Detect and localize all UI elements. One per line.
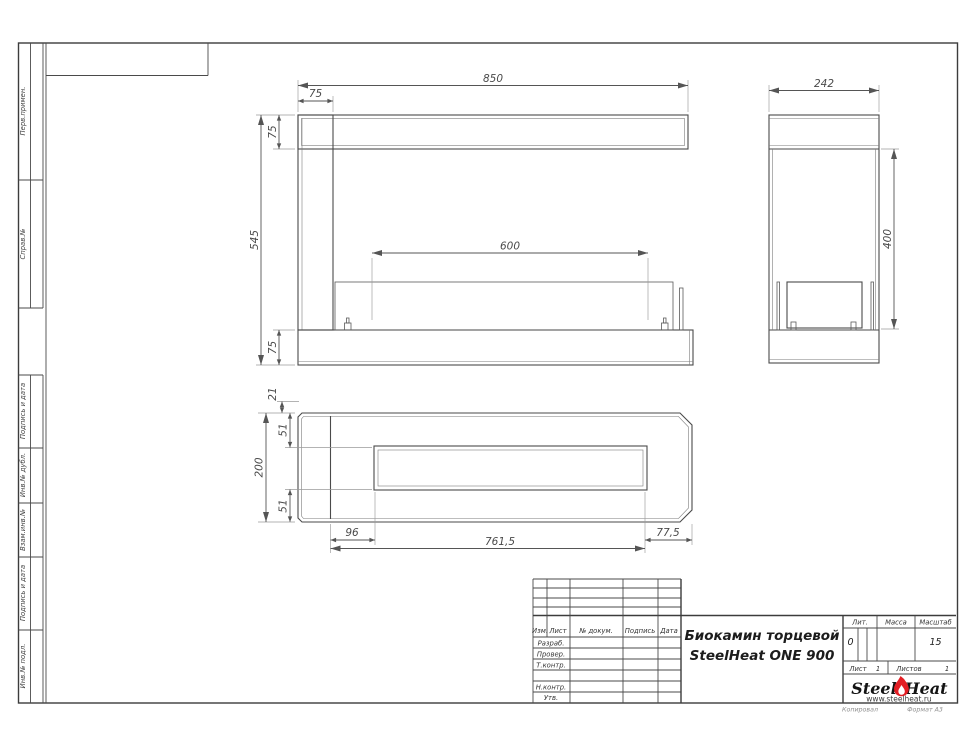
front-view-dimensions: 850 75 75 545 600 75 bbox=[249, 73, 688, 365]
glass-panel bbox=[335, 282, 673, 330]
sheets-value: 1 bbox=[945, 665, 949, 673]
glass-edge-left bbox=[777, 282, 780, 330]
dim-front-left-inset: 75 bbox=[309, 88, 323, 100]
stamp-label-vzam-inv: Взам.инв.№ bbox=[19, 509, 27, 551]
sheets-label: Листов bbox=[895, 665, 921, 673]
dim-top-overall-depth: 200 bbox=[254, 457, 266, 477]
dim-front-top-bar-height: 75 bbox=[267, 125, 279, 139]
row-checked: Провер. bbox=[537, 651, 565, 659]
lit-label: Лит. bbox=[851, 619, 868, 627]
glass-edge-right bbox=[871, 282, 874, 330]
burner-slot bbox=[374, 446, 647, 490]
dim-front-overall-height: 545 bbox=[249, 230, 261, 250]
dim-top-slot-length: 761,5 bbox=[485, 536, 515, 548]
front-view bbox=[298, 115, 693, 365]
mass-label: Масса bbox=[885, 619, 907, 627]
steelheat-logo: Steel Heat www.steelheat.ru bbox=[851, 676, 948, 704]
burner-block bbox=[787, 282, 862, 328]
row-ncontrol: Н.контр. bbox=[536, 684, 566, 692]
sheet-border bbox=[19, 43, 958, 703]
dim-front-base-height: 75 bbox=[267, 341, 279, 355]
stamp-label-podpis-data-2: Подпись и дата bbox=[19, 565, 27, 621]
col-doc: № докум. bbox=[578, 627, 613, 635]
top-view-dimensions: 21 51 51 200 96 761,5 77,5 bbox=[254, 387, 693, 553]
scale-label: Масштаб bbox=[919, 619, 951, 627]
glass-holder-rod bbox=[680, 288, 684, 330]
dim-front-overall-width: 850 bbox=[483, 73, 503, 85]
document-title-line2: SteelHeat ONE 900 bbox=[690, 648, 835, 664]
footer-notes: Копировал Формат А3 bbox=[842, 707, 943, 714]
col-list: Лист bbox=[548, 627, 567, 635]
stamp-label-inv-dubl: Инв.№ дубл. bbox=[19, 453, 27, 497]
lit-value: 0 bbox=[847, 637, 853, 648]
stamp-label-inv-podl: Инв.№ подл. bbox=[19, 644, 27, 689]
format-label: Формат А3 bbox=[907, 707, 943, 714]
drawing-page: Перв.примен. Справ.№ Подпись и дата Инв.… bbox=[0, 0, 970, 749]
col-sign: Подпись bbox=[625, 627, 656, 635]
row-developed: Разраб. bbox=[538, 640, 565, 648]
dim-side-opening-height: 400 bbox=[882, 229, 894, 249]
logo-website: www.steelheat.ru bbox=[866, 695, 932, 704]
stamp-column: Перв.примен. Справ.№ Подпись и дата Инв.… bbox=[19, 43, 44, 703]
dim-top-left-offset: 96 bbox=[345, 527, 359, 539]
sheet-label: Лист bbox=[848, 665, 867, 673]
row-tcontrol: Т.контр. bbox=[536, 662, 565, 670]
sheet-value: 1 bbox=[876, 665, 880, 673]
col-date: Дата bbox=[659, 627, 678, 635]
drawing-sheet: Перв.примен. Справ.№ Подпись и дата Инв.… bbox=[0, 0, 970, 749]
burner-clamp-right bbox=[662, 318, 669, 330]
stamp-label-podpis-data-1: Подпись и дата bbox=[19, 383, 27, 439]
document-title-line1: Биокамин торцевой bbox=[684, 628, 840, 644]
dim-top-front-wall: 51 bbox=[278, 423, 290, 436]
side-view bbox=[769, 115, 879, 363]
dim-top-back-wall: 51 bbox=[278, 499, 290, 512]
dim-front-burner-length: 600 bbox=[500, 241, 520, 253]
dim-top-lip: 21 bbox=[267, 387, 279, 400]
sheet-frame bbox=[19, 43, 958, 703]
dim-side-overall-depth: 242 bbox=[814, 78, 834, 90]
stamp-label-sprav-no: Справ.№ bbox=[19, 229, 27, 260]
copied-label: Копировал bbox=[842, 707, 878, 714]
burner-clamp-left bbox=[345, 318, 352, 330]
dim-top-right-offset: 77,5 bbox=[656, 527, 680, 539]
stamp-label-perv-primen: Перв.примен. bbox=[19, 87, 27, 136]
scale-value: 15 bbox=[929, 637, 941, 648]
col-izm: Изм. bbox=[532, 627, 548, 635]
top-view bbox=[298, 413, 692, 522]
row-approved: Утв. bbox=[544, 694, 558, 702]
